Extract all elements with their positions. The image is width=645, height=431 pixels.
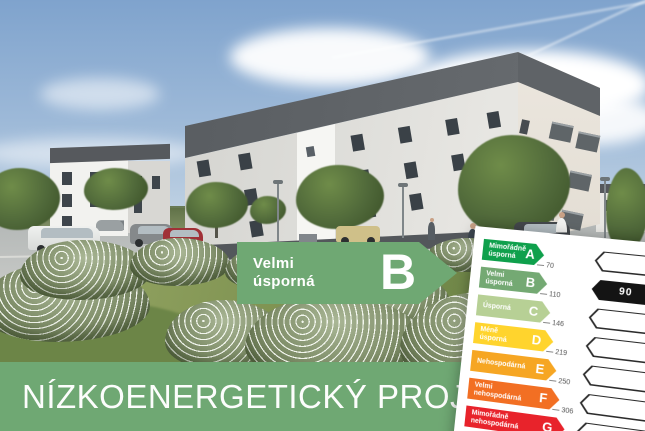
rating-row: A xyxy=(594,250,645,283)
window xyxy=(62,194,72,207)
energy-class-label: Velmi nehospodárná xyxy=(468,381,517,402)
grade-arrow: Velmi úsporná B xyxy=(237,242,457,304)
outline-arrow xyxy=(594,250,645,277)
window xyxy=(398,126,412,144)
outline-arrow xyxy=(588,307,645,335)
rating-value-arrow: 90 xyxy=(591,279,645,307)
boundary-value: 146 xyxy=(543,319,565,328)
window xyxy=(62,172,72,185)
rating-row: G xyxy=(576,420,645,431)
energy-class-letter: D xyxy=(531,332,554,350)
boundary-value: 250 xyxy=(549,377,571,387)
energy-class-label: Mimořádně úsporná xyxy=(482,242,526,261)
energy-class-arrow-a: Mimořádně úsporná A xyxy=(482,239,545,266)
window xyxy=(404,161,418,179)
energy-label-card: Mimořádně úsporná A Velmi úsporná B Úspo… xyxy=(451,226,645,431)
outline-arrow xyxy=(585,336,645,365)
outline-arrow-inner xyxy=(578,423,644,431)
energy-class-letter: E xyxy=(535,361,557,379)
energy-class-arrow-f: Velmi nehospodárná F xyxy=(467,378,560,411)
grade-arrow-line1: Velmi xyxy=(253,255,315,273)
car-window xyxy=(41,228,93,238)
balcony xyxy=(567,170,592,191)
outline-arrow-inner xyxy=(590,309,645,334)
balcony xyxy=(575,131,600,152)
energy-class-label: Velmi úsporná xyxy=(479,270,526,289)
outline-arrow-inner xyxy=(596,252,645,276)
energy-class-label: Méně úsporná xyxy=(473,325,522,345)
energy-class-letter: A xyxy=(525,246,548,263)
flowering-bush xyxy=(130,238,230,286)
street-lamp xyxy=(402,186,404,238)
outline-arrow xyxy=(576,421,645,431)
energy-class-label: Mimořádně nehospodárná xyxy=(465,409,514,430)
person-head xyxy=(430,218,434,222)
energy-class-letter: F xyxy=(539,390,561,408)
street-lamp xyxy=(604,180,606,238)
rating-value: 90 xyxy=(618,286,633,299)
window xyxy=(350,134,364,152)
energy-class-letter: C xyxy=(528,303,551,320)
boundary-value: 219 xyxy=(546,348,568,358)
grade-letter: B xyxy=(380,243,416,301)
person xyxy=(428,222,435,240)
balcony xyxy=(549,122,574,143)
window xyxy=(306,146,316,157)
energy-class-label: Úsporná xyxy=(477,301,525,314)
energy-class-arrow-d: Méně úsporná D xyxy=(473,322,554,352)
energy-class-arrow-b: Velmi úsporná B xyxy=(479,267,548,295)
boundary-value: 110 xyxy=(540,290,561,299)
energy-class-arrow-c: Úsporná C xyxy=(476,294,551,323)
window xyxy=(409,193,423,211)
energy-class-arrow-e: Nehospodárná E xyxy=(470,350,557,382)
window xyxy=(519,119,530,134)
energy-class-letter: B xyxy=(525,274,548,291)
outline-arrow-inner xyxy=(581,394,645,420)
boundary-value: 70 xyxy=(537,261,555,270)
outline-arrow-inner xyxy=(584,366,645,392)
promo-image: Velmi úsporná B NÍZKOENERGETICKÝ PROJEKT… xyxy=(0,0,645,431)
window xyxy=(487,111,501,129)
grade-arrow-text: Velmi úsporná xyxy=(253,255,315,291)
cloud xyxy=(40,78,160,110)
car xyxy=(96,220,124,231)
energy-class-label: Nehospodárná xyxy=(471,357,519,370)
window xyxy=(152,176,160,189)
car-van xyxy=(336,226,380,242)
window xyxy=(238,153,252,171)
boundary-value: 306 xyxy=(552,406,574,416)
window xyxy=(445,118,459,136)
outline-arrow xyxy=(579,393,645,422)
outline-arrow-inner xyxy=(587,337,645,362)
outline-arrow xyxy=(582,364,645,393)
window xyxy=(197,160,211,178)
car-window xyxy=(170,230,199,237)
energy-class-letter: G xyxy=(541,419,565,431)
grade-arrow-line2: úsporná xyxy=(253,273,315,291)
person-head xyxy=(559,212,565,218)
